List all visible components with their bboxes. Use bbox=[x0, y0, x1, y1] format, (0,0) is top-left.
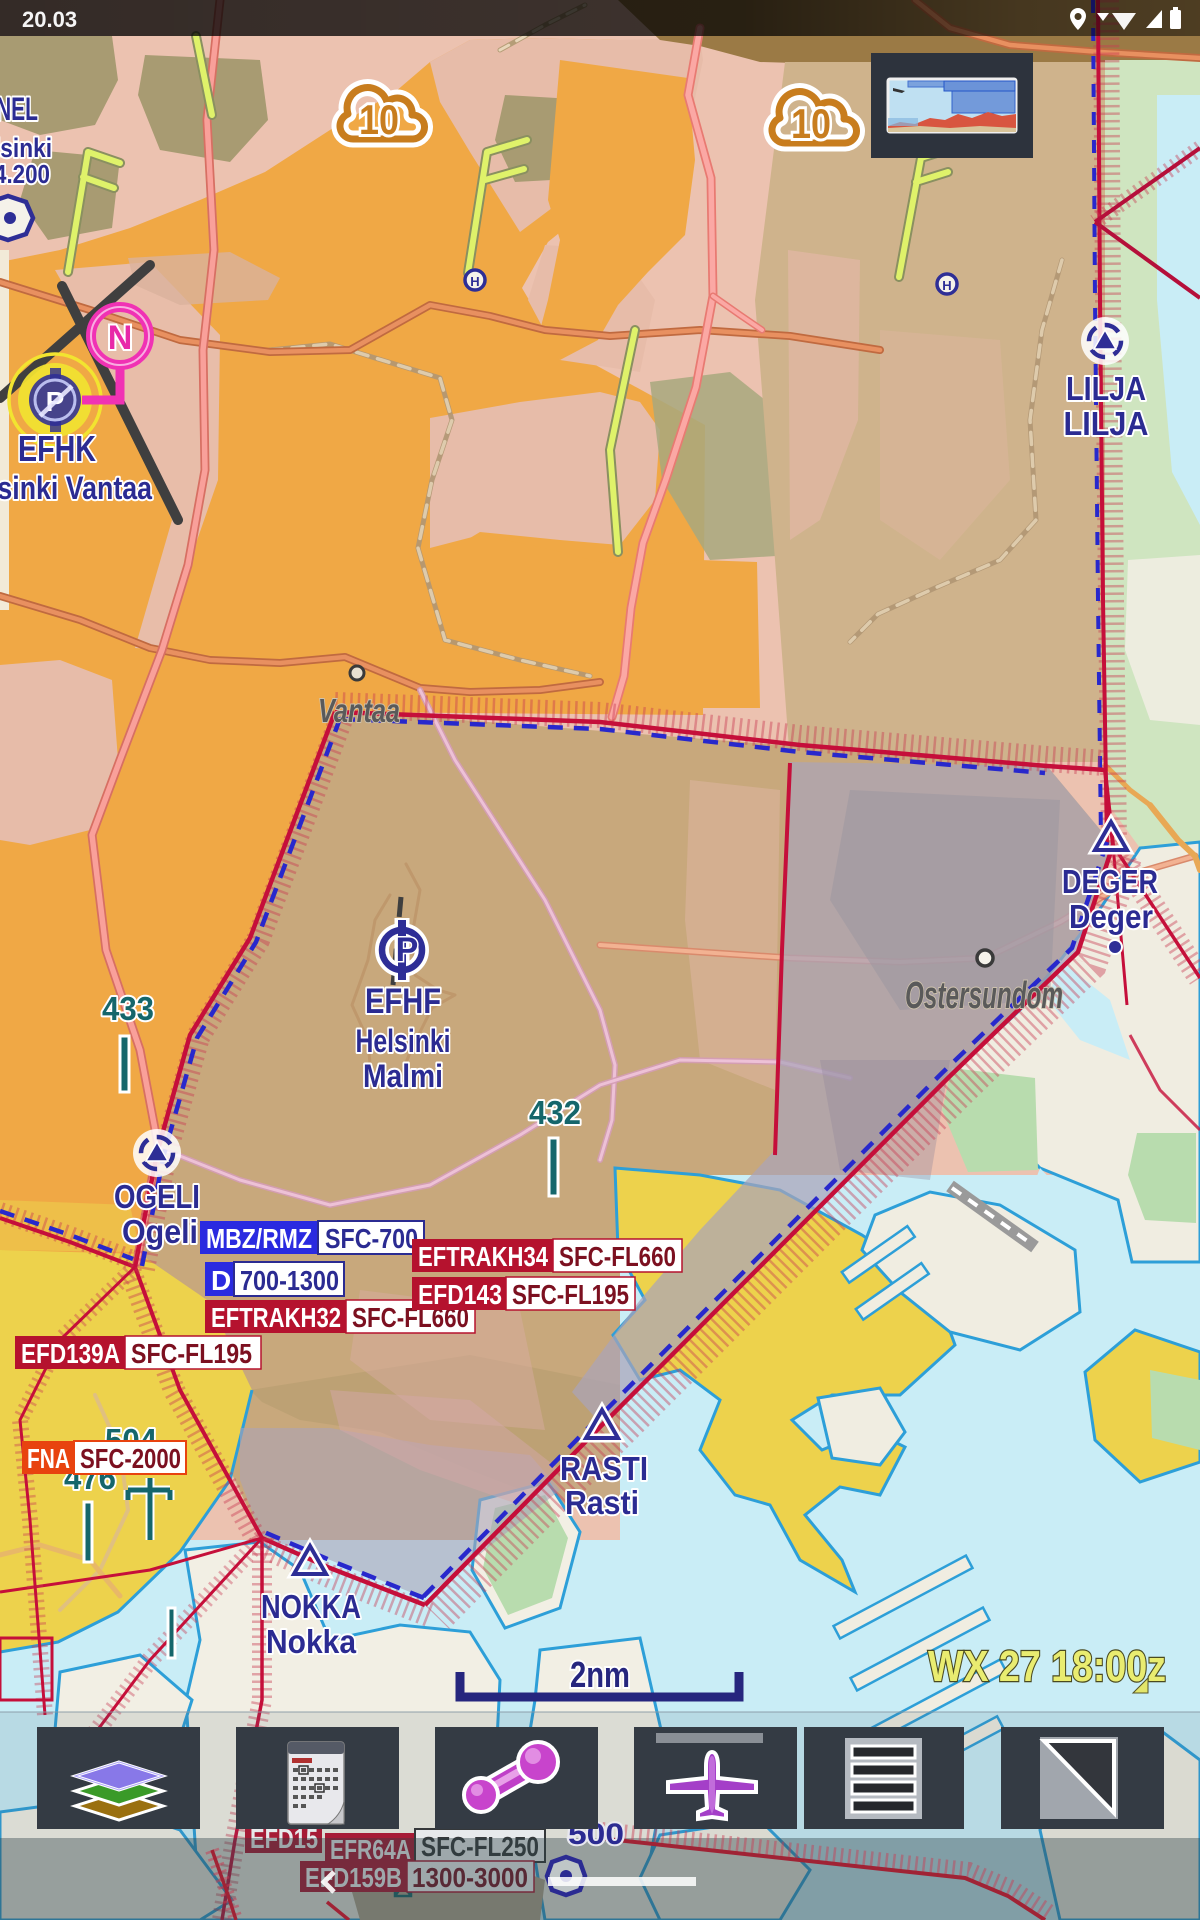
svg-text:lsinki Vantaa: lsinki Vantaa bbox=[0, 470, 152, 506]
svg-text:433: 433 bbox=[102, 990, 154, 1027]
svg-text:LILJA: LILJA bbox=[1064, 405, 1149, 442]
svg-text:SFC-2000: SFC-2000 bbox=[80, 1443, 181, 1474]
svg-text:10: 10 bbox=[359, 96, 399, 143]
svg-text:700-1300: 700-1300 bbox=[240, 1265, 339, 1296]
svg-text:DEGER: DEGER bbox=[1062, 863, 1158, 900]
svg-text:Vantaa: Vantaa bbox=[318, 692, 400, 729]
svg-text:SFC-FL195: SFC-FL195 bbox=[131, 1338, 252, 1369]
svg-text:SFC-FL195: SFC-FL195 bbox=[512, 1279, 629, 1310]
svg-text:D: D bbox=[211, 1265, 231, 1296]
svg-text:EFTRAKH32: EFTRAKH32 bbox=[211, 1302, 341, 1333]
svg-text:20.03: 20.03 bbox=[22, 7, 77, 32]
svg-text:SFC-FL660: SFC-FL660 bbox=[559, 1241, 676, 1272]
svg-text:4.200: 4.200 bbox=[0, 159, 50, 189]
svg-text:OGELI: OGELI bbox=[114, 1178, 200, 1215]
svg-text:SFC-700: SFC-700 bbox=[325, 1223, 418, 1254]
svg-text:Malmi: Malmi bbox=[363, 1058, 443, 1094]
svg-text:EFTRAKH34: EFTRAKH34 bbox=[418, 1241, 548, 1272]
svg-text:2nm: 2nm bbox=[570, 1654, 630, 1695]
svg-text:RASTI: RASTI bbox=[560, 1450, 648, 1487]
svg-text:Nokka: Nokka bbox=[266, 1623, 357, 1660]
svg-text:NOKKA: NOKKA bbox=[261, 1588, 361, 1625]
svg-text:P: P bbox=[396, 931, 419, 969]
svg-text:10: 10 bbox=[791, 100, 831, 147]
svg-text:MBZ/RMZ: MBZ/RMZ bbox=[206, 1223, 312, 1254]
svg-text:H: H bbox=[470, 274, 479, 289]
svg-text:Rasti: Rasti bbox=[565, 1484, 639, 1521]
svg-text:WX 27 18:00z: WX 27 18:00z bbox=[928, 1642, 1166, 1691]
svg-text:Helsinki: Helsinki bbox=[356, 1023, 451, 1059]
svg-text:NEL: NEL bbox=[0, 91, 38, 127]
svg-text:Deger: Deger bbox=[1069, 898, 1153, 935]
svg-text:FNA: FNA bbox=[27, 1443, 70, 1474]
svg-text:EFHF: EFHF bbox=[365, 982, 441, 1021]
svg-text:LILJA: LILJA bbox=[1066, 370, 1146, 407]
svg-text:EFD139A: EFD139A bbox=[21, 1338, 120, 1369]
svg-text:EFD143: EFD143 bbox=[418, 1279, 502, 1310]
svg-text:432: 432 bbox=[529, 1094, 581, 1131]
svg-text:N: N bbox=[108, 319, 133, 357]
svg-text:Ostersundom: Ostersundom bbox=[905, 975, 1063, 1017]
svg-text:Ogeli: Ogeli bbox=[122, 1213, 198, 1250]
svg-text:EFHK: EFHK bbox=[18, 428, 96, 469]
svg-text:H: H bbox=[942, 278, 951, 293]
